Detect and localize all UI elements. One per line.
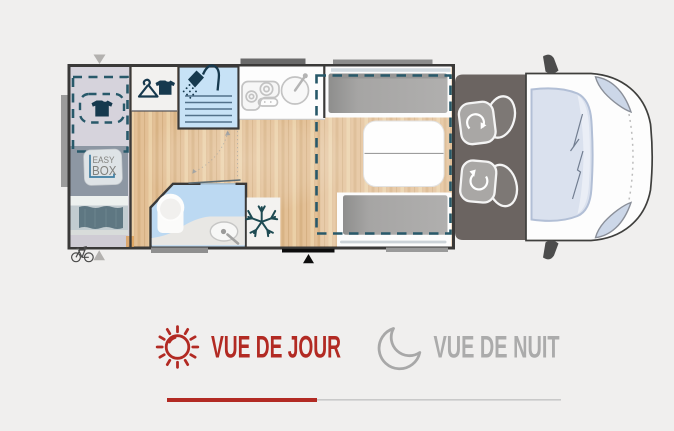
svg-text:VUE DE NUIT: VUE DE NUIT [434,329,560,365]
svg-text:BOX: BOX [92,163,117,178]
svg-text:VUE DE JOUR: VUE DE JOUR [211,329,341,365]
